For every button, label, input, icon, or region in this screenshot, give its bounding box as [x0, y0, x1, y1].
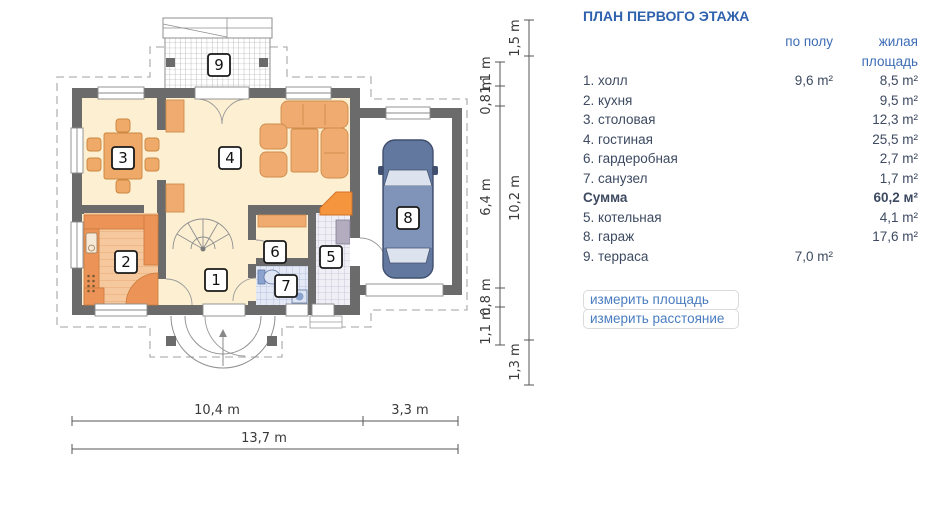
terrace-post — [166, 58, 175, 67]
armchair — [260, 152, 287, 177]
floor-area — [758, 208, 833, 228]
room-badge-5: 5 — [320, 246, 342, 268]
table-row: 7. санузел 1,7 m² — [583, 169, 928, 189]
room-name: 3. столовая — [583, 110, 758, 130]
room-badge-7: 7 — [275, 275, 297, 297]
living-area — [833, 247, 918, 267]
dim-label: 0,8 m — [479, 77, 494, 114]
floor-area — [758, 149, 833, 169]
living-area: 2,7 m² — [833, 149, 918, 169]
table-row: 4. гостиная 25,5 m² — [583, 130, 928, 150]
svg-text:8: 8 — [403, 209, 413, 227]
floor-area — [758, 188, 833, 208]
room-name: 5. котельная — [583, 208, 758, 228]
floor-area — [758, 91, 833, 111]
room-name: 7. санузел — [583, 169, 758, 189]
floor-area — [758, 130, 833, 150]
entrance-arrow-icon — [219, 329, 227, 337]
room-badge-6: 6 — [264, 241, 286, 263]
dim-label: 6,4 m — [479, 178, 494, 215]
living-area: 8,5 m² — [833, 71, 918, 91]
room-name: 6. гардеробная — [583, 149, 758, 169]
svg-text:1: 1 — [211, 271, 221, 289]
living-area: 25,5 m² — [833, 130, 918, 150]
area-panel: ПЛАН ПЕРВОГО ЭТАЖА по полу жилая площадь… — [583, 8, 928, 329]
table-row: 2. кухня 9,5 m² — [583, 91, 928, 111]
dim-label: 3,3 m — [391, 403, 428, 418]
cabinet — [166, 184, 184, 212]
table-header: по полу жилая площадь — [583, 32, 928, 71]
room-badge-2: 2 — [115, 251, 137, 273]
room-badge-9: 9 — [208, 54, 230, 76]
sofa — [281, 101, 348, 128]
table-row: 6. гардеробная 2,7 m² — [583, 149, 928, 169]
dim-label: 1,3 m — [508, 343, 523, 380]
garage-door-opening — [366, 284, 443, 296]
svg-text:3: 3 — [118, 149, 128, 167]
wardrobe-shelf — [258, 215, 306, 227]
car-mirror — [432, 166, 438, 175]
room-badge-8: 8 — [397, 207, 419, 229]
dim-label: 1,5 m — [508, 19, 523, 56]
room-name: Сумма — [583, 188, 758, 208]
svg-text:6: 6 — [270, 243, 280, 261]
room-name: 4. гостиная — [583, 130, 758, 150]
floor-area: 7,0 m² — [758, 247, 833, 267]
column-header-floor: по полу — [758, 32, 833, 71]
room-name: 1. холл — [583, 71, 758, 91]
page-title: ПЛАН ПЕРВОГО ЭТАЖА — [583, 8, 928, 24]
floor-area — [758, 227, 833, 247]
svg-text:5: 5 — [326, 248, 336, 266]
dim-label: 13,7 m — [241, 431, 287, 446]
car-mirror — [378, 166, 384, 175]
cabinet — [166, 100, 184, 132]
column-header-living: жилая площадь — [833, 32, 918, 71]
area-table: по полу жилая площадь 1. холл 9,6 m² 8,5… — [583, 32, 928, 266]
room-name: 8. гараж — [583, 227, 758, 247]
living-area: 12,3 m² — [833, 110, 918, 130]
living-area: 60,2 м² — [833, 188, 918, 208]
table-row: 9. терраса 7,0 m² — [583, 247, 928, 267]
room-badge-3: 3 — [112, 147, 134, 169]
table-row: 5. котельная 4,1 m² — [583, 208, 928, 228]
front-door-opening — [203, 304, 245, 316]
table-row: 3. столовая 12,3 m² — [583, 110, 928, 130]
porch-post — [166, 336, 176, 346]
living-area: 4,1 m² — [833, 208, 918, 228]
table-row-sum: Сумма 60,2 м² — [583, 188, 928, 208]
table-row: 8. гараж 17,6 m² — [583, 227, 928, 247]
boiler — [336, 220, 350, 244]
room-badge-1: 1 — [205, 269, 227, 291]
table-row: 1. холл 9,6 m² 8,5 m² — [583, 71, 928, 91]
floor-area: 9,6 m² — [758, 71, 833, 91]
measure-distance-link[interactable]: измерить расстояние — [583, 309, 739, 329]
page: 1 2 3 4 5 6 7 8 9 — [0, 0, 940, 501]
entrance-porch — [166, 316, 277, 368]
room-name: 9. терраса — [583, 247, 758, 267]
header-spacer — [583, 32, 758, 71]
floor-area — [758, 110, 833, 130]
terrace-post — [259, 58, 268, 67]
kitchen-sink — [86, 233, 97, 253]
porch-post — [267, 336, 277, 346]
living-area: 1,7 m² — [833, 169, 918, 189]
dim-label: 10,4 m — [194, 403, 240, 418]
svg-text:7: 7 — [281, 277, 291, 295]
coffee-table — [291, 129, 318, 172]
room-badge-4: 4 — [219, 147, 241, 169]
floor-plan-svg: 1 2 3 4 5 6 7 8 9 — [0, 0, 570, 501]
armchair — [260, 124, 287, 149]
svg-text:9: 9 — [214, 56, 224, 74]
measure-area-link[interactable]: измерить площадь — [583, 290, 739, 310]
terrace-door-opening — [195, 87, 249, 99]
room-name: 2. кухня — [583, 91, 758, 111]
dim-label: 10,2 m — [508, 175, 523, 221]
svg-text:4: 4 — [225, 149, 235, 167]
living-area: 17,6 m² — [833, 227, 918, 247]
dim-label: 1,1 m — [479, 307, 494, 344]
measure-links: измерить площадь измерить расстояние — [583, 290, 739, 329]
floor-area — [758, 169, 833, 189]
svg-text:2: 2 — [121, 253, 131, 271]
living-area: 9,5 m² — [833, 91, 918, 111]
